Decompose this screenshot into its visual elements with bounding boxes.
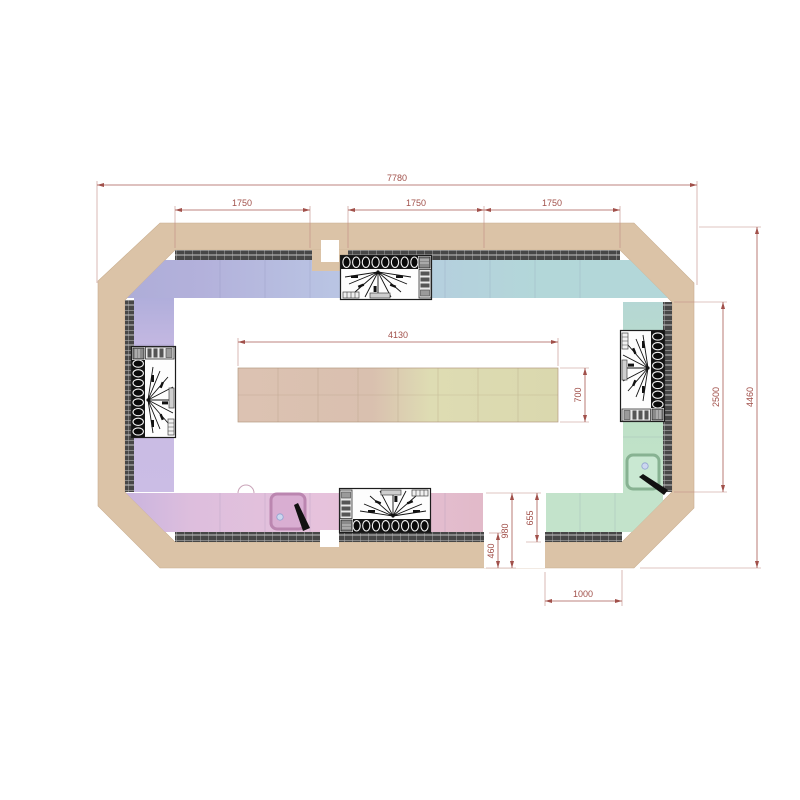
bottom-wall-notch bbox=[320, 530, 339, 547]
top-wall-notch bbox=[321, 240, 339, 262]
dim-label: 4130 bbox=[388, 330, 408, 340]
range-cooker-left bbox=[132, 347, 176, 438]
dimension-island-length: 4130 bbox=[238, 330, 558, 366]
dim-label: 7780 bbox=[387, 173, 407, 183]
range-cooker-right bbox=[621, 331, 665, 422]
tile-strip-bottom bbox=[175, 532, 622, 542]
island-counter bbox=[238, 368, 558, 422]
dim-label: 980 bbox=[500, 523, 510, 538]
range-cooker-bottom bbox=[340, 489, 431, 533]
dim-label: 1750 bbox=[542, 198, 562, 208]
dim-label: 1000 bbox=[573, 589, 593, 599]
floor-plan-drawing: 7780 1750 1750 1750 4130 700 bbox=[0, 0, 800, 800]
floor-plan-page: 7780 1750 1750 1750 4130 700 bbox=[0, 0, 800, 800]
dim-label: 1750 bbox=[232, 198, 252, 208]
dim-label: 1750 bbox=[406, 198, 426, 208]
dimension-corner-counter-width: 1000 bbox=[545, 570, 622, 606]
dim-label: 460 bbox=[486, 543, 496, 558]
dim-label: 4460 bbox=[745, 387, 755, 407]
dim-label: 700 bbox=[573, 387, 583, 402]
range-cooker-top bbox=[341, 256, 432, 300]
dim-label: 2500 bbox=[711, 387, 721, 407]
dim-label: 655 bbox=[525, 510, 535, 525]
dimension-island-depth: 700 bbox=[560, 368, 589, 422]
